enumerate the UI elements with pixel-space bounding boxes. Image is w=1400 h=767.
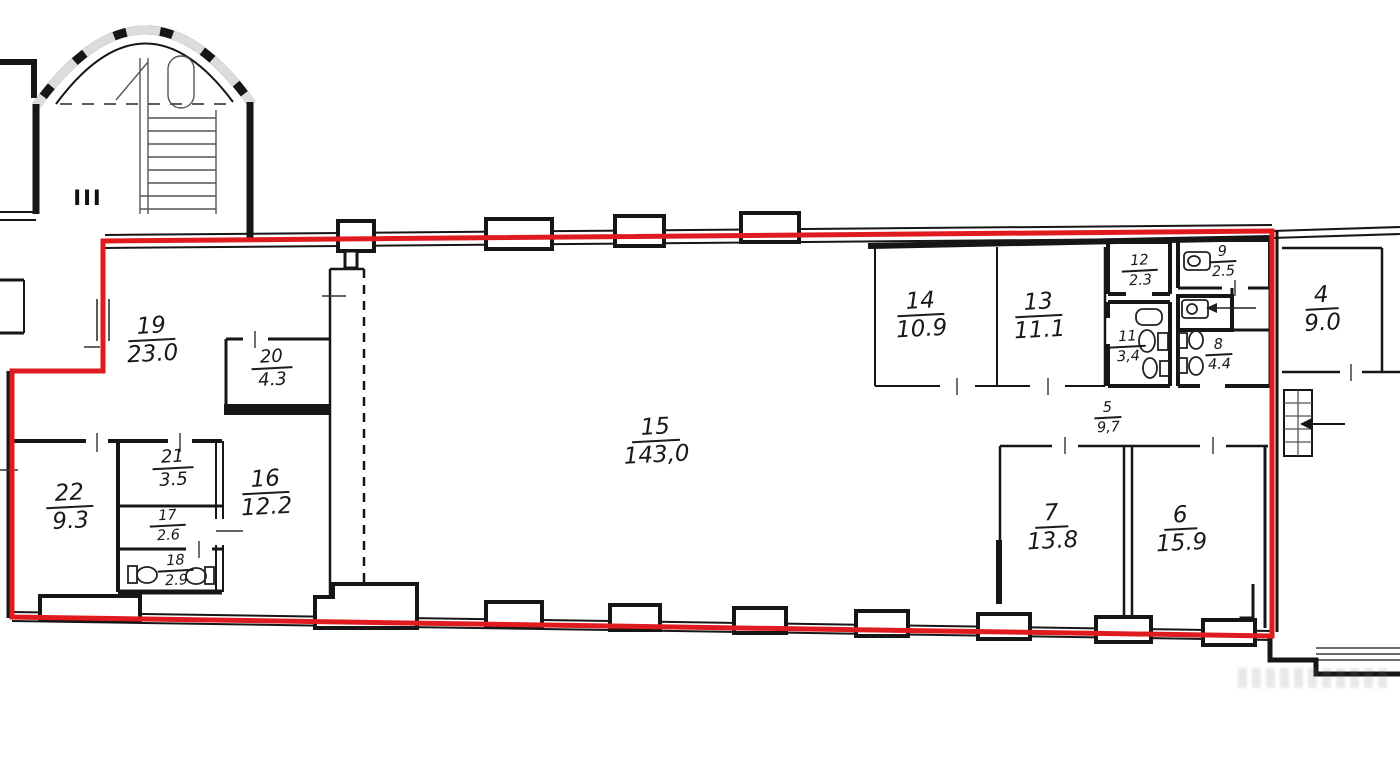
- stair-roman-numeral: III: [73, 186, 102, 210]
- floor-plan: III 1923.0 204.3 213.5 229.3 172.6 182.9…: [0, 0, 1400, 767]
- floorplan-drawing: [0, 0, 1400, 767]
- staircase: [116, 56, 216, 214]
- watermark: [1238, 668, 1390, 688]
- entrance-arrow: [1300, 418, 1345, 430]
- unit-boundary: [12, 231, 1272, 636]
- toilet-fixtures: [128, 252, 1210, 584]
